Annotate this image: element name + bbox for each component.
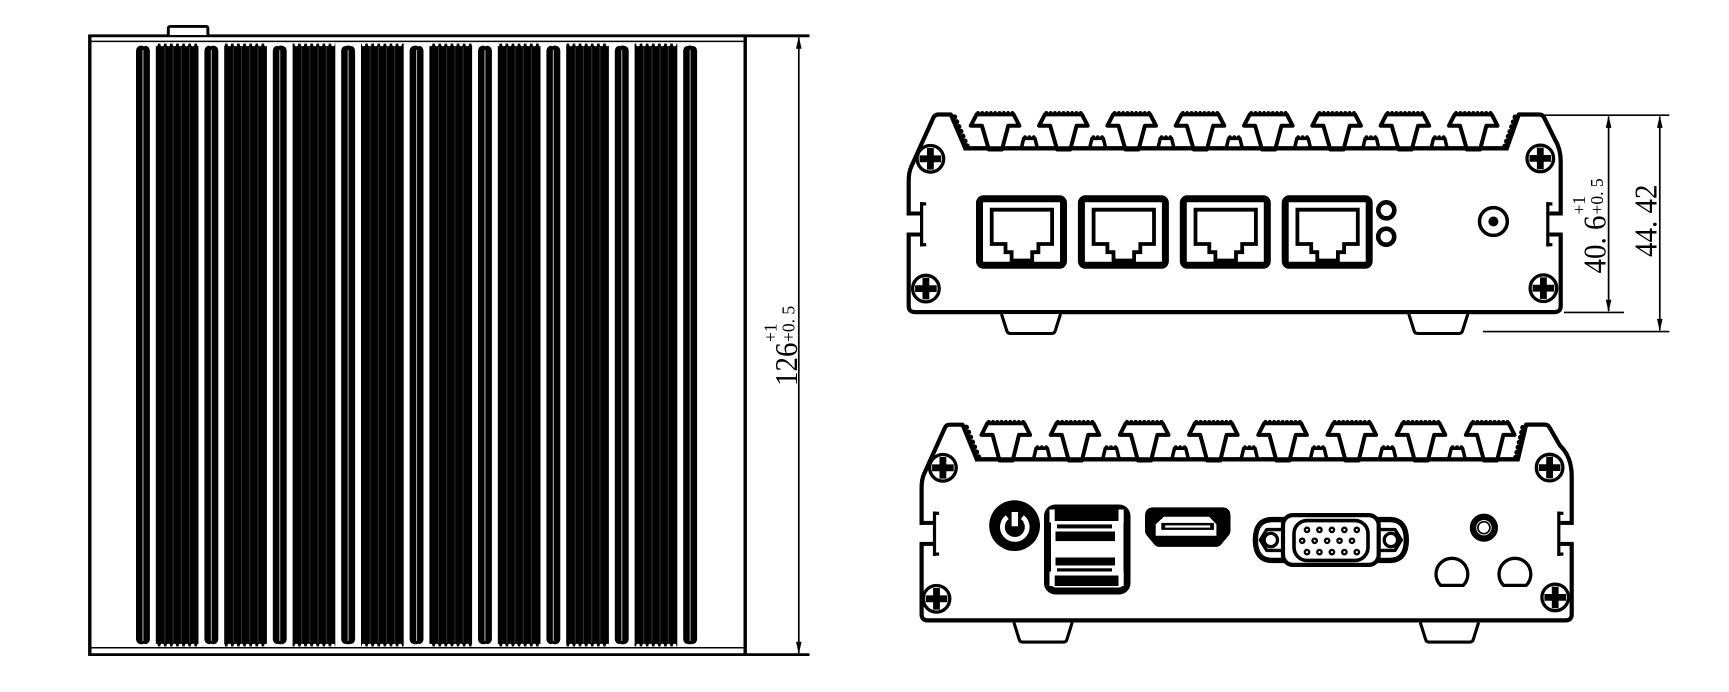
svg-text:+1: +1: [761, 323, 781, 342]
svg-text:40. 6: 40. 6: [1577, 216, 1613, 274]
svg-text:+0. 5: +0. 5: [1587, 178, 1607, 214]
svg-text:+0. 5: +0. 5: [779, 306, 799, 342]
svg-text:126: 126: [769, 343, 805, 386]
svg-text:44. 42: 44. 42: [1628, 185, 1664, 257]
svg-text:+1: +1: [1569, 196, 1589, 215]
